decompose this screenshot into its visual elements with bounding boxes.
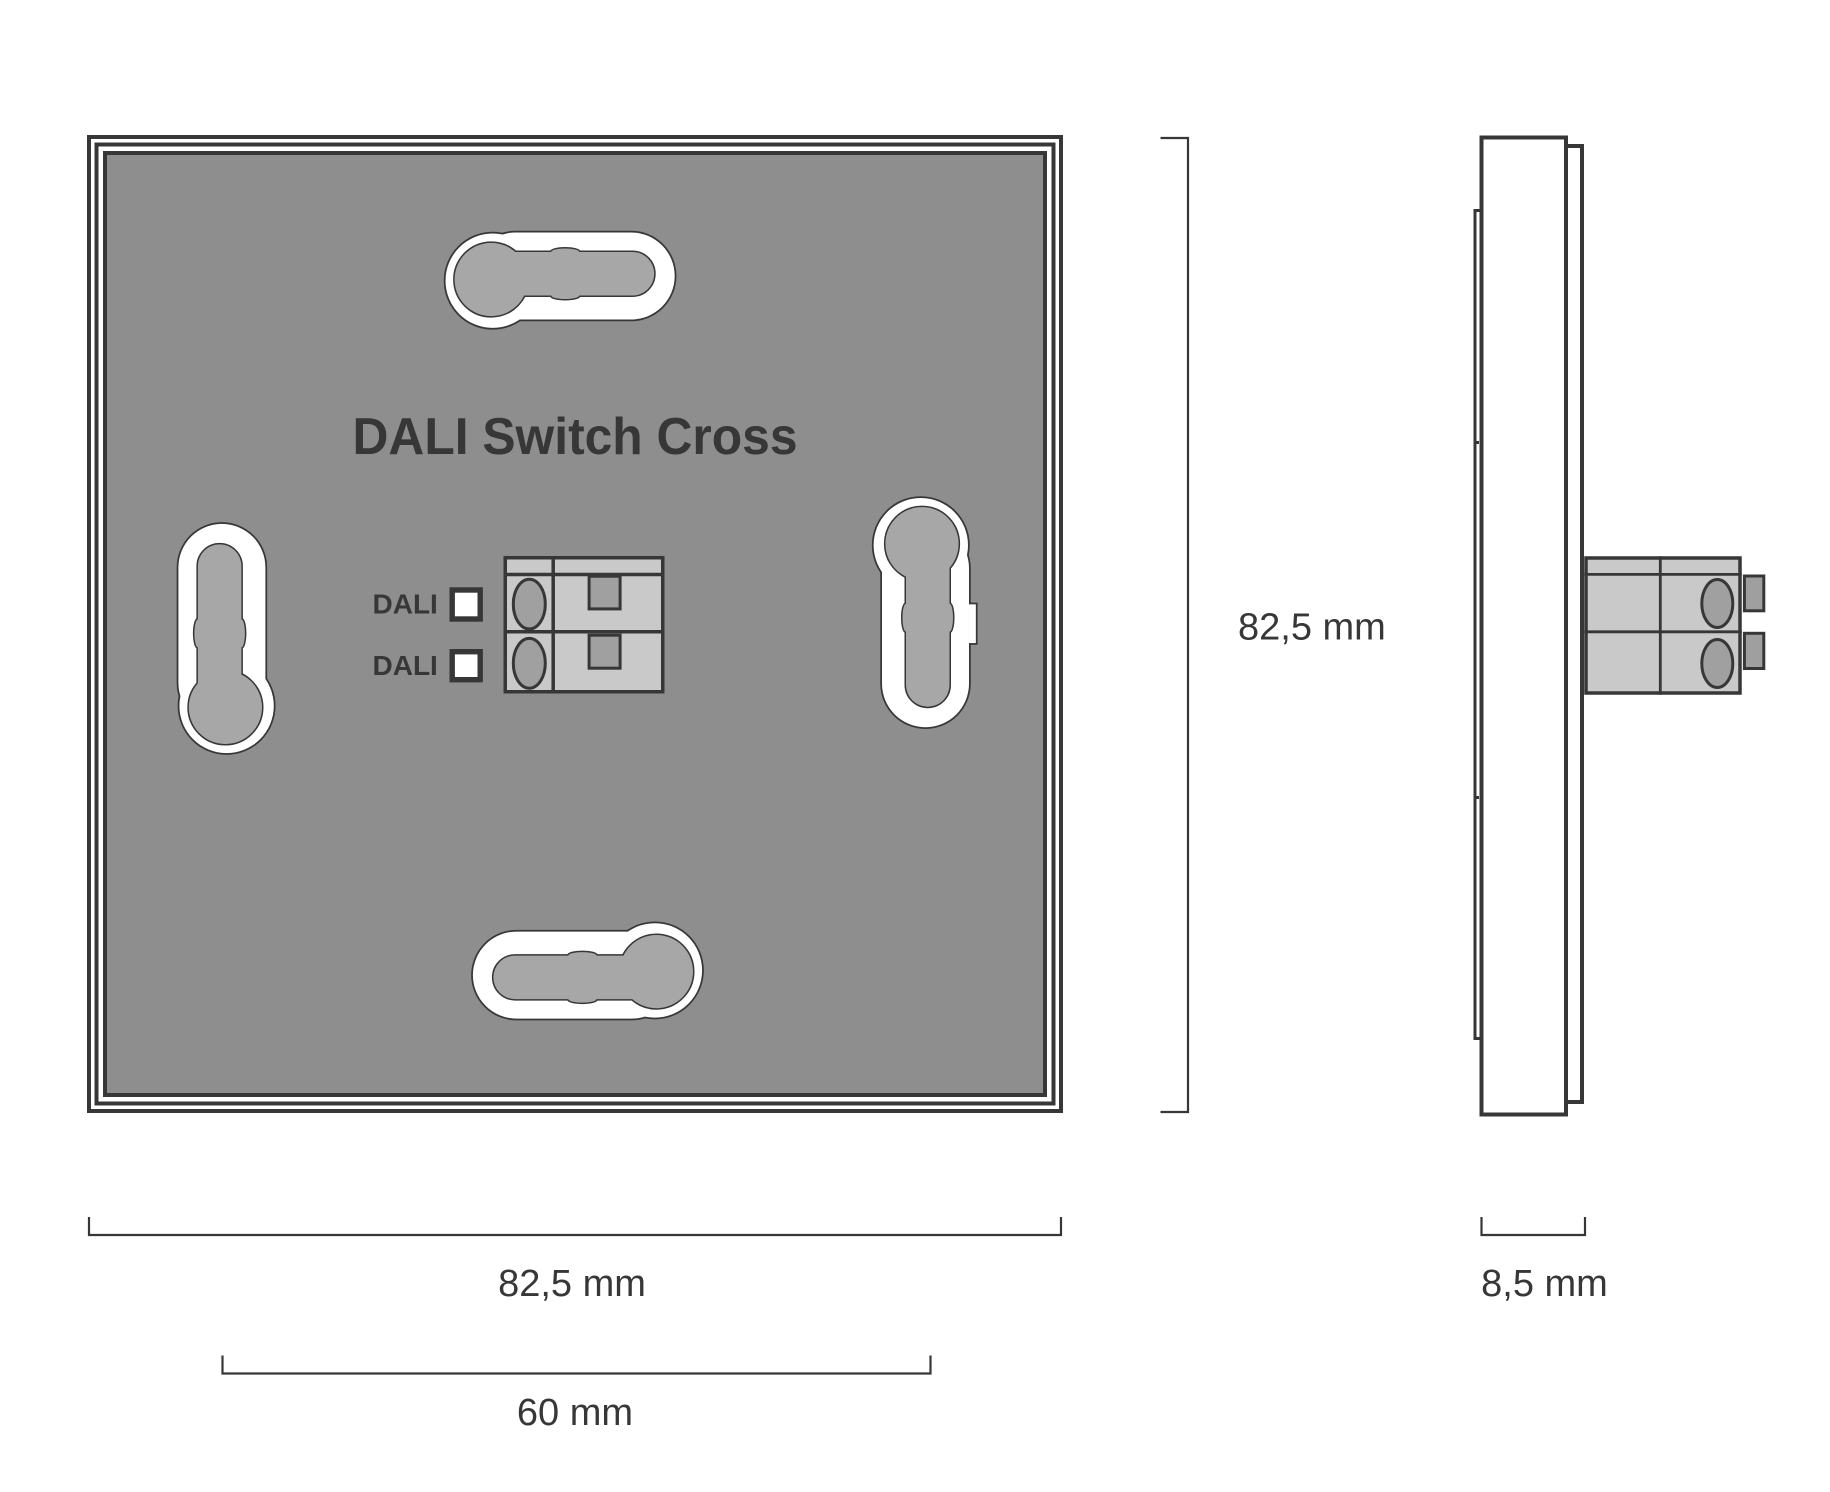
svg-text:82,5 mm: 82,5 mm: [1238, 607, 1386, 649]
svg-text:82,5 mm: 82,5 mm: [498, 1263, 646, 1305]
svg-text:DALI: DALI: [373, 588, 438, 619]
svg-text:DALI Switch Cross: DALI Switch Cross: [353, 408, 798, 466]
svg-text:60 mm: 60 mm: [517, 1392, 633, 1434]
svg-text:8,5 mm: 8,5 mm: [1481, 1263, 1608, 1305]
svg-text:DALI: DALI: [373, 650, 438, 681]
